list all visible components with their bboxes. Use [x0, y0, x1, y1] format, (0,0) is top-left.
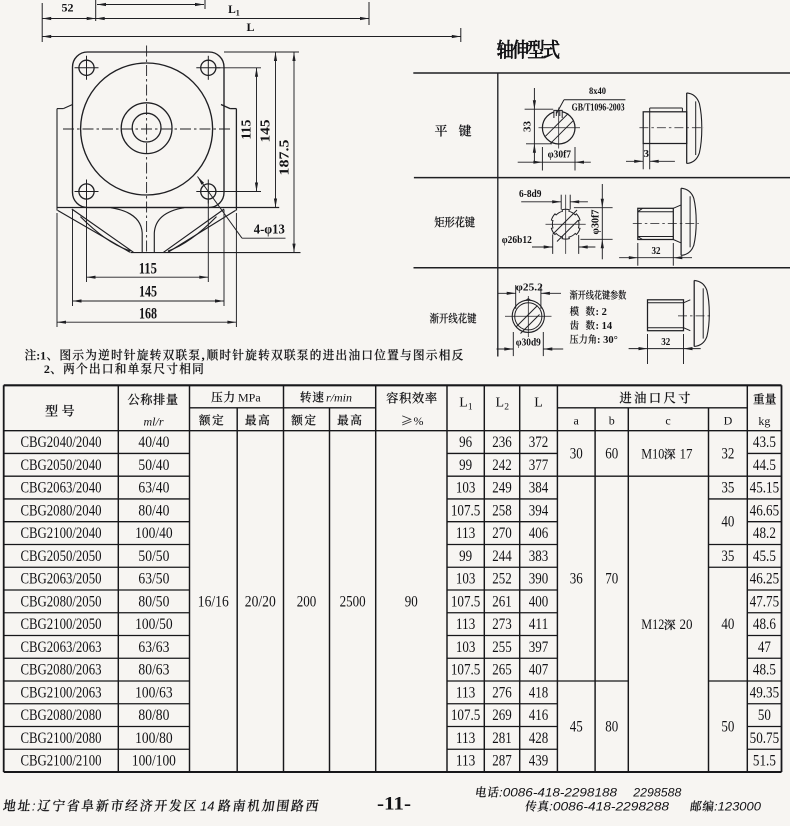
svg-text:a: a — [574, 414, 580, 428]
svg-text:50/50: 50/50 — [138, 548, 169, 565]
svg-text:6-8d9: 6-8d9 — [519, 188, 542, 200]
svg-text:265: 265 — [492, 662, 512, 679]
svg-text:40/40: 40/40 — [138, 434, 169, 451]
svg-text:63/50: 63/50 — [138, 571, 169, 588]
svg-text:kg: kg — [758, 414, 770, 428]
svg-text:400: 400 — [529, 593, 549, 610]
svg-text:439: 439 — [529, 753, 549, 770]
svg-text:CBG2040/2040: CBG2040/2040 — [21, 434, 102, 451]
svg-text:r/min: r/min — [326, 391, 352, 405]
svg-text:CBG2100/2040: CBG2100/2040 — [21, 525, 102, 542]
svg-text:200: 200 — [297, 593, 317, 610]
svg-text:35: 35 — [721, 480, 734, 497]
svg-text:L: L — [534, 396, 543, 411]
svg-text:M10: M10 — [641, 446, 664, 462]
svg-text:40: 40 — [721, 616, 734, 633]
svg-text:35: 35 — [721, 548, 734, 565]
svg-text:20/20: 20/20 — [245, 593, 276, 610]
svg-text:52: 52 — [62, 1, 74, 15]
svg-text:20: 20 — [680, 617, 693, 633]
svg-text:384: 384 — [529, 480, 549, 497]
svg-text:φ30f7: φ30f7 — [548, 149, 572, 161]
svg-text:CBG2063/2040: CBG2063/2040 — [21, 480, 102, 497]
svg-text:L: L — [459, 396, 468, 411]
svg-text:80: 80 — [605, 718, 618, 735]
svg-text:-11-: -11- — [377, 794, 411, 815]
svg-text:L: L — [496, 396, 505, 411]
svg-text:CBG2063/2063: CBG2063/2063 — [21, 639, 102, 656]
svg-text::0086-418-2298288: :0086-418-2298288 — [549, 800, 669, 814]
svg-text:100/63: 100/63 — [135, 684, 173, 701]
svg-text:φ25.2: φ25.2 — [516, 282, 544, 294]
svg-text:113: 113 — [456, 730, 476, 747]
svg-text:187.5: 187.5 — [276, 139, 291, 175]
svg-text:D: D — [724, 414, 733, 428]
svg-text:60: 60 — [605, 445, 618, 462]
svg-text:418: 418 — [529, 684, 549, 701]
svg-text:96: 96 — [459, 434, 472, 451]
svg-text:103: 103 — [456, 571, 476, 588]
svg-text:428: 428 — [529, 730, 549, 747]
svg-text:CBG2080/2080: CBG2080/2080 — [21, 707, 102, 724]
svg-text:b: b — [609, 414, 615, 428]
svg-text:: 30°: : 30° — [597, 335, 618, 346]
svg-text:115: 115 — [139, 261, 157, 278]
svg-text:46.25: 46.25 — [750, 571, 780, 588]
svg-text:51.5: 51.5 — [753, 753, 776, 770]
svg-text:48.5: 48.5 — [753, 662, 776, 679]
svg-text:100/100: 100/100 — [132, 753, 176, 770]
svg-text:145: 145 — [258, 119, 273, 142]
svg-text:M12: M12 — [641, 617, 664, 633]
svg-text:φ26b12: φ26b12 — [502, 234, 532, 246]
svg-text:49.35: 49.35 — [750, 684, 780, 701]
svg-text:107.5: 107.5 — [451, 502, 481, 519]
svg-text:17: 17 — [680, 446, 693, 462]
svg-text:407: 407 — [529, 662, 549, 679]
svg-text:36: 36 — [570, 571, 583, 588]
svg-text::: : — [32, 799, 36, 814]
svg-text:90: 90 — [405, 593, 418, 610]
svg-text:CBG2050/2040: CBG2050/2040 — [21, 457, 102, 474]
svg-text:32: 32 — [721, 445, 734, 462]
svg-text:φ30d9: φ30d9 — [516, 336, 541, 348]
svg-text:372: 372 — [529, 434, 549, 451]
svg-text:50: 50 — [758, 707, 771, 724]
svg-text::1: :1 — [36, 349, 46, 363]
svg-text:411: 411 — [529, 616, 549, 633]
svg-text:ml/r: ml/r — [143, 415, 163, 429]
svg-text:48.6: 48.6 — [753, 616, 776, 633]
svg-text:3: 3 — [644, 148, 650, 160]
svg-text:30: 30 — [570, 445, 583, 462]
svg-text:113: 113 — [456, 753, 476, 770]
svg-text:276: 276 — [492, 684, 512, 701]
svg-text:: 2: : 2 — [596, 307, 607, 318]
svg-text:47.75: 47.75 — [750, 593, 780, 610]
svg-text:397: 397 — [529, 639, 549, 656]
svg-text:48.2: 48.2 — [753, 525, 776, 542]
svg-text:50: 50 — [721, 718, 734, 735]
svg-text:CBG2080/2050: CBG2080/2050 — [21, 593, 102, 610]
svg-text:33: 33 — [522, 121, 534, 133]
svg-text:43.5: 43.5 — [753, 434, 776, 451]
svg-text:416: 416 — [529, 707, 549, 724]
svg-text:113: 113 — [456, 525, 476, 542]
svg-text:CBG2100/2080: CBG2100/2080 — [21, 730, 102, 747]
svg-text:244: 244 — [492, 548, 512, 565]
svg-text:MPa: MPa — [238, 391, 261, 405]
svg-text:2298588: 2298588 — [632, 786, 681, 800]
svg-text:45.5: 45.5 — [753, 548, 776, 565]
svg-text:100/80: 100/80 — [135, 730, 173, 747]
svg-text:255: 255 — [492, 639, 512, 656]
svg-text:45: 45 — [570, 718, 583, 735]
svg-text:261: 261 — [492, 593, 512, 610]
svg-text:46.65: 46.65 — [750, 502, 780, 519]
svg-text:c: c — [665, 414, 670, 428]
svg-text:14: 14 — [200, 799, 214, 814]
svg-text:236: 236 — [492, 434, 512, 451]
svg-text:252: 252 — [492, 571, 512, 588]
svg-text:47: 47 — [758, 639, 771, 656]
svg-text:107.5: 107.5 — [451, 662, 481, 679]
svg-text:406: 406 — [529, 525, 549, 542]
svg-text:80/40: 80/40 — [138, 502, 169, 519]
svg-text:2: 2 — [504, 403, 509, 413]
svg-text::123000: :123000 — [714, 800, 761, 814]
svg-text:2500: 2500 — [340, 593, 366, 610]
svg-text:φ30f7: φ30f7 — [589, 209, 601, 234]
svg-text:145: 145 — [139, 284, 157, 301]
svg-text:281: 281 — [492, 730, 512, 747]
svg-text:242: 242 — [492, 457, 512, 474]
svg-text:390: 390 — [529, 571, 549, 588]
svg-text:32: 32 — [661, 336, 670, 348]
svg-text:80/63: 80/63 — [138, 662, 169, 679]
svg-text:CBG2100/2050: CBG2100/2050 — [21, 616, 102, 633]
svg-text:80/80: 80/80 — [138, 707, 169, 724]
svg-text:2: 2 — [44, 362, 50, 376]
svg-text:270: 270 — [492, 525, 512, 542]
svg-text:40: 40 — [721, 514, 734, 531]
svg-text:16/16: 16/16 — [198, 593, 229, 610]
svg-text:394: 394 — [529, 502, 549, 519]
svg-text:100/50: 100/50 — [135, 616, 173, 633]
svg-text:383: 383 — [529, 548, 549, 565]
svg-text:50/40: 50/40 — [138, 457, 169, 474]
svg-text:107.5: 107.5 — [451, 707, 481, 724]
svg-text:45.15: 45.15 — [750, 480, 780, 497]
svg-text:103: 103 — [456, 639, 476, 656]
svg-text:,: , — [202, 348, 205, 363]
svg-text:GB/T1096-2003: GB/T1096-2003 — [572, 103, 625, 114]
svg-text:CBG2100/2100: CBG2100/2100 — [21, 753, 102, 770]
svg-text:63/63: 63/63 — [138, 639, 169, 656]
svg-text:%: % — [414, 414, 424, 428]
svg-text:1: 1 — [236, 9, 240, 18]
svg-text:4-φ13: 4-φ13 — [254, 223, 285, 238]
svg-text::0086-418-2298188: :0086-418-2298188 — [499, 786, 617, 800]
svg-text:168: 168 — [139, 306, 157, 323]
svg-text:269: 269 — [492, 707, 512, 724]
svg-text:CBG2080/2063: CBG2080/2063 — [21, 662, 102, 679]
svg-text:80/50: 80/50 — [138, 593, 169, 610]
svg-text:CBG2100/2063: CBG2100/2063 — [21, 684, 102, 701]
svg-text:100/40: 100/40 — [135, 525, 173, 542]
svg-text:63/40: 63/40 — [138, 480, 169, 497]
svg-text:1: 1 — [468, 403, 473, 413]
svg-text:377: 377 — [529, 457, 549, 474]
svg-text:103: 103 — [456, 480, 476, 497]
svg-text:258: 258 — [492, 502, 512, 519]
svg-text:115: 115 — [239, 119, 254, 139]
svg-text:CBG2050/2050: CBG2050/2050 — [21, 548, 102, 565]
svg-text:249: 249 — [492, 480, 512, 497]
svg-text:113: 113 — [456, 684, 476, 701]
svg-text:L: L — [246, 20, 254, 34]
svg-text:273: 273 — [492, 616, 512, 633]
svg-text:CBG2080/2040: CBG2080/2040 — [21, 502, 102, 519]
svg-text:70: 70 — [605, 571, 618, 588]
svg-text:CBG2063/2050: CBG2063/2050 — [21, 571, 102, 588]
svg-text:8x40: 8x40 — [589, 87, 606, 97]
svg-text:99: 99 — [459, 457, 472, 474]
svg-text:50.75: 50.75 — [750, 730, 780, 747]
svg-text:32: 32 — [652, 245, 661, 257]
svg-text:107.5: 107.5 — [451, 593, 481, 610]
svg-text:113: 113 — [456, 616, 476, 633]
svg-text:: 14: : 14 — [596, 321, 613, 332]
svg-text:287: 287 — [492, 753, 512, 770]
svg-text:99: 99 — [459, 548, 472, 565]
svg-text:44.5: 44.5 — [753, 457, 776, 474]
